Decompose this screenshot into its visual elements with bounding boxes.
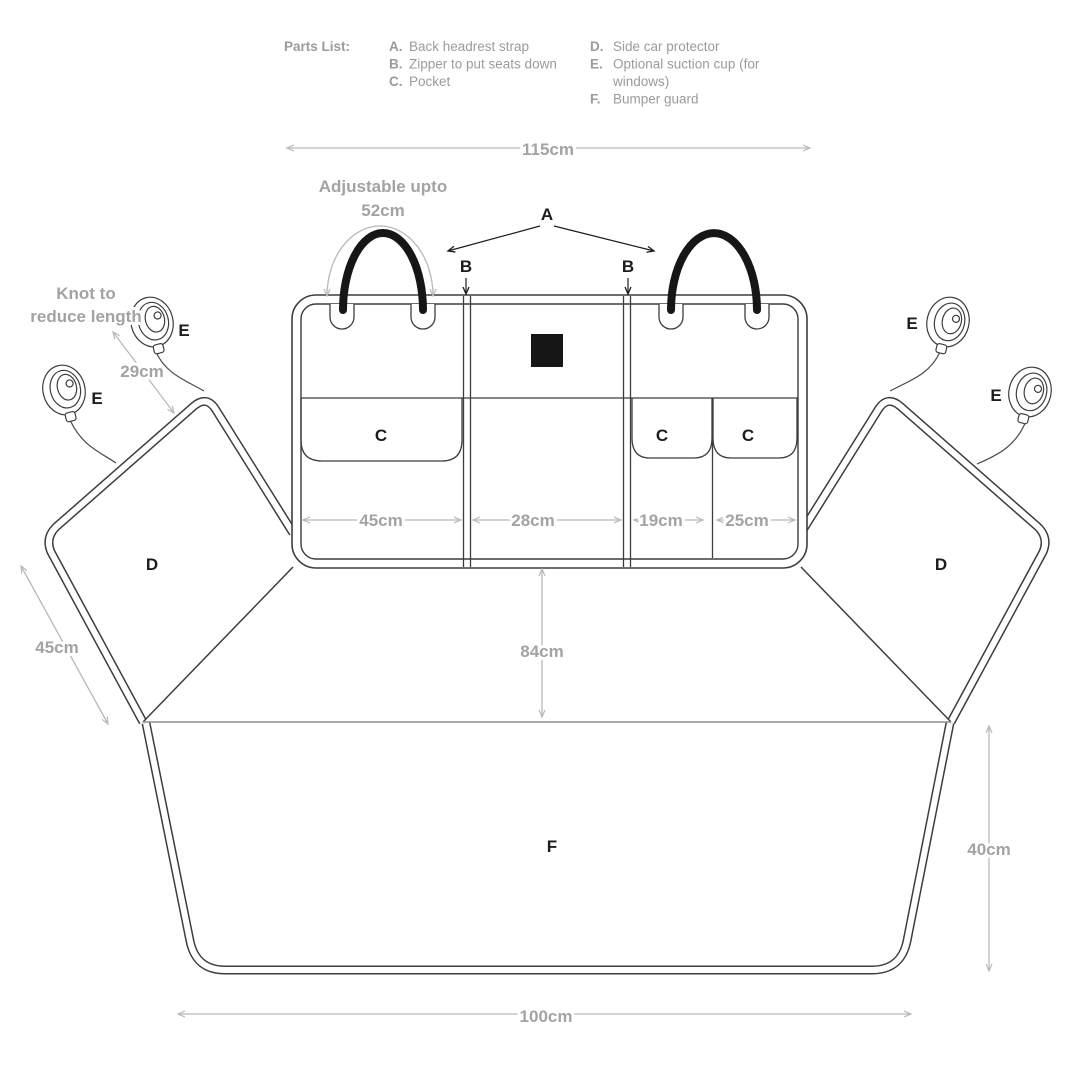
dim-side-flap: 45cm	[35, 638, 78, 657]
suction-cup-left-lower	[38, 361, 93, 426]
label-e-right-lower: E	[990, 386, 1001, 405]
dim-pocket-small-1: 19cm	[639, 511, 682, 530]
dim-bumper-height: 40cm	[967, 840, 1010, 859]
dim-suction-strap: 29cm	[120, 362, 163, 381]
label-e-right-upper: E	[906, 314, 917, 333]
label-c-large: C	[375, 426, 387, 445]
label-c-small-1: C	[656, 426, 668, 445]
label-a: A	[541, 205, 553, 224]
dim-seat-depth: 84cm	[520, 642, 563, 661]
parts-list: Parts List: A. Back headrest strap B. Zi…	[284, 39, 760, 107]
label-d-right: D	[935, 555, 947, 574]
parts-list-item-a: Back headrest strap	[409, 39, 529, 54]
note-knot-2: reduce length	[30, 307, 141, 326]
parts-list-letter-a: A.	[389, 39, 403, 54]
dim-middle-section: 28cm	[511, 511, 554, 530]
dim-bottom-width: 100cm	[520, 1007, 573, 1026]
suction-cup-right-lower	[1002, 363, 1057, 428]
label-d-left: D	[146, 555, 158, 574]
dim-overall-width: 115cm	[522, 140, 574, 159]
dim-pocket-large: 45cm	[359, 511, 402, 530]
parts-list-item-e-wrap: windows)	[612, 74, 669, 89]
label-e-left-upper: E	[178, 321, 189, 340]
suction-cup-right-upper	[920, 293, 975, 358]
parts-list-item-f: Bumper guard	[613, 92, 699, 107]
parts-list-letter-d: D.	[590, 39, 604, 54]
parts-list-title: Parts List:	[284, 39, 350, 54]
diagram: 115cm Adjustable upto 52cm Knot to reduc…	[0, 0, 1080, 1080]
parts-list-item-b: Zipper to put seats down	[409, 57, 557, 72]
label-e-left-lower: E	[91, 389, 102, 408]
parts-list-letter-e: E.	[590, 57, 603, 72]
car-seat-cover-diagram-page: 115cm Adjustable upto 52cm Knot to reduc…	[0, 0, 1080, 1080]
parts-list-item-d: Side car protector	[613, 39, 720, 54]
label-c-small-2: C	[742, 426, 754, 445]
dim-pocket-small-2: 25cm	[725, 511, 768, 530]
parts-list-item-e: Optional suction cup (for	[613, 57, 760, 72]
parts-list-letter-c: C.	[389, 74, 403, 89]
label-b-right: B	[622, 257, 634, 276]
label-f: F	[547, 837, 557, 856]
note-adjustable-2: 52cm	[361, 201, 404, 220]
label-b-left: B	[460, 257, 472, 276]
note-knot-1: Knot to	[56, 284, 115, 303]
parts-list-letter-b: B.	[389, 57, 403, 72]
parts-list-letter-f: F.	[590, 92, 601, 107]
logo-square	[531, 334, 563, 367]
note-adjustable-1: Adjustable upto	[319, 177, 447, 196]
parts-list-item-c: Pocket	[409, 74, 451, 89]
